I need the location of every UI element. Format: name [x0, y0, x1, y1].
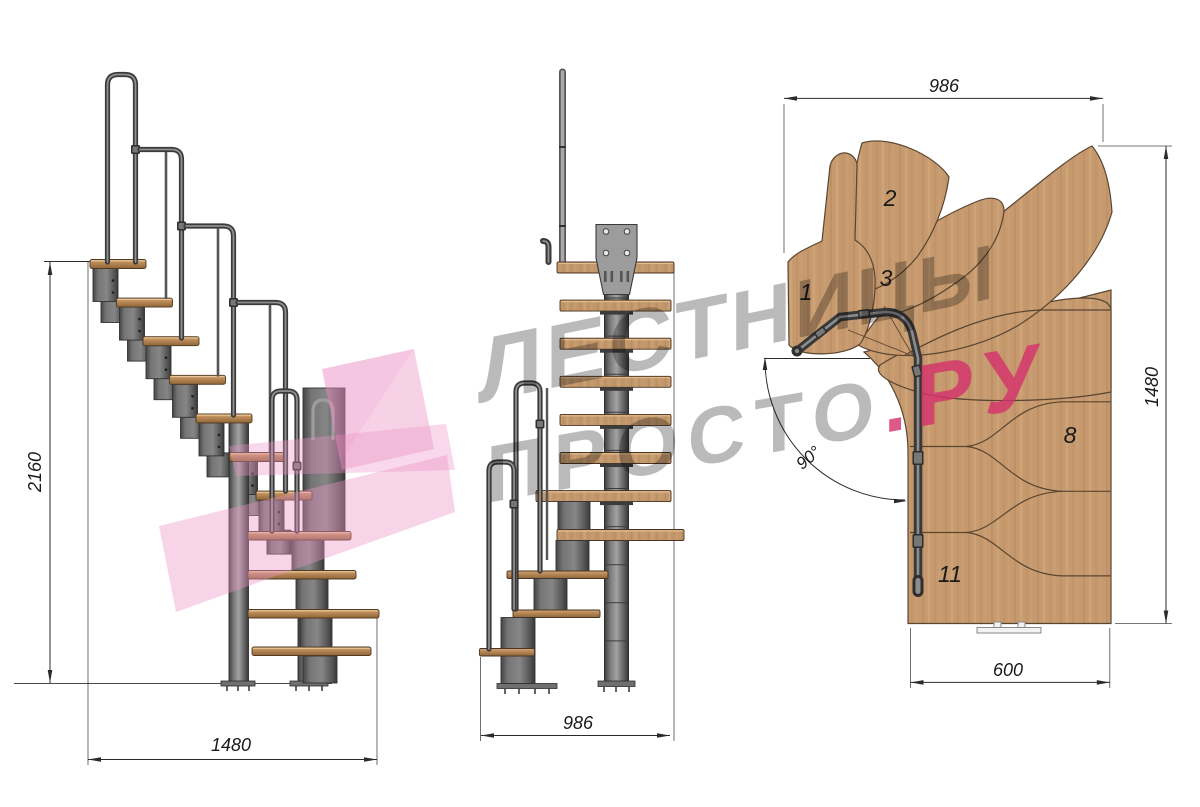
svg-text:1480: 1480: [1142, 367, 1162, 407]
svg-text:1480: 1480: [211, 735, 251, 755]
svg-text:986: 986: [563, 713, 594, 733]
svg-text:11: 11: [938, 561, 962, 587]
svg-text:2: 2: [883, 185, 897, 211]
svg-text:600: 600: [993, 660, 1023, 680]
svg-text:2160: 2160: [25, 452, 45, 493]
svg-text:986: 986: [929, 76, 960, 96]
svg-text:8: 8: [1064, 422, 1077, 448]
